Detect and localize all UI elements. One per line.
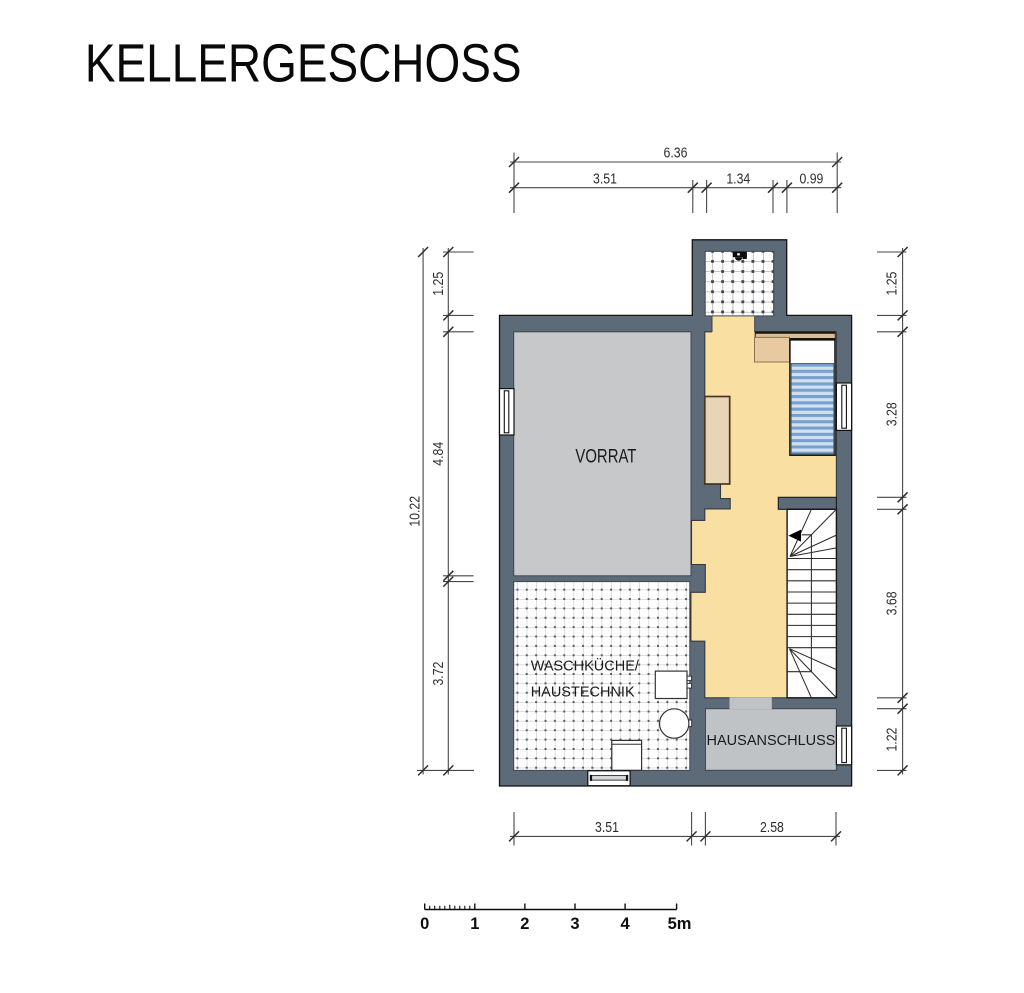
svg-text:3.51: 3.51 [593,170,617,186]
svg-text:5m: 5m [668,915,692,933]
svg-text:1.25: 1.25 [430,272,446,296]
svg-text:3.68: 3.68 [883,591,899,615]
svg-text:4.84: 4.84 [430,442,446,466]
svg-text:HAUSANSCHLUSS: HAUSANSCHLUSS [707,733,836,749]
svg-text:HAUSTECHNIK: HAUSTECHNIK [531,685,635,701]
svg-text:3.28: 3.28 [883,402,899,426]
svg-text:WASCHKÜCHE/: WASCHKÜCHE/ [531,656,640,674]
svg-text:3: 3 [570,915,579,933]
svg-text:1.25: 1.25 [883,271,899,295]
svg-text:3.51: 3.51 [595,819,619,835]
svg-text:4: 4 [621,915,631,933]
svg-text:1: 1 [470,915,479,933]
svg-text:KELLERGESCHOSS: KELLERGESCHOSS [85,33,522,93]
svg-text:1.34: 1.34 [726,170,750,186]
svg-text:10.22: 10.22 [406,496,422,527]
svg-text:1.22: 1.22 [883,728,899,752]
svg-text:6.36: 6.36 [664,144,688,160]
svg-text:3.72: 3.72 [430,662,446,686]
svg-text:0.99: 0.99 [799,170,823,186]
svg-text:0: 0 [420,915,429,933]
svg-text:2: 2 [520,915,529,933]
svg-text:VORRAT: VORRAT [575,445,636,467]
svg-text:2.58: 2.58 [760,819,784,835]
